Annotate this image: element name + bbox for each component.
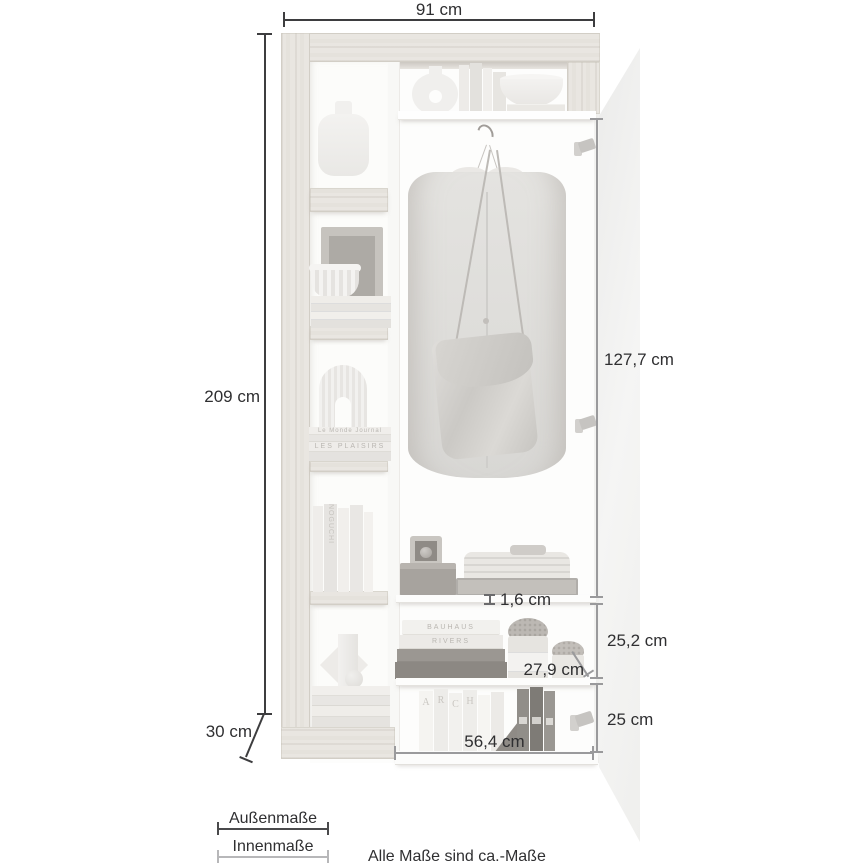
outer-width-label: 91 cm <box>283 0 595 20</box>
middle-shelf-tick-bottom <box>590 677 603 679</box>
book-noguchi-label: NOGUCHI <box>327 504 334 544</box>
book-stack-subtitle: Le Monde Journal <box>309 427 391 435</box>
bottom-shelf-line <box>596 683 598 753</box>
outer-height-tick-top <box>257 33 272 35</box>
legend-inner-label: Innenmaße <box>218 838 328 856</box>
hinge-middle <box>575 415 597 435</box>
legend-note: Alle Maße sind ca.-Maße <box>368 848 546 866</box>
book-stack-title: LES PLAISIRS <box>309 442 391 452</box>
outer-height-label: 209 cm <box>180 387 260 407</box>
bottom-shelf-tick-top <box>590 683 603 685</box>
folder-letter-c: C <box>449 699 462 710</box>
folder-letter-a: A <box>419 697 433 708</box>
middle-shelf-label: 25,2 cm <box>607 631 667 651</box>
vase-decor-body <box>318 114 369 176</box>
left-shelf-1 <box>310 188 388 212</box>
book-bauhaus: BAUHAUS <box>402 620 500 635</box>
frame-bottom-plank <box>281 727 395 759</box>
frame-left-plank <box>281 33 310 759</box>
inner-width-tick-right <box>592 746 594 760</box>
middle-shelf-line <box>596 603 598 678</box>
coat-button-1 <box>483 318 489 324</box>
door-height-tick-bottom <box>590 596 603 598</box>
product-dimension-diagram: Le Monde Journal LES PLAISIRS NOGUCHI <box>0 0 868 868</box>
frame-right-corner-plank <box>567 62 600 114</box>
bottom-book-stack <box>312 686 390 728</box>
left-shelf-4 <box>310 591 388 605</box>
door-height-line <box>596 118 598 598</box>
middle-shelf-tick-top <box>590 603 603 605</box>
folder-letter-h: H <box>463 696 477 707</box>
arch-sculpture-notch <box>335 397 351 429</box>
book-noguchi-spine: NOGUCHI <box>324 504 337 592</box>
bottom-shelf-label: 25 cm <box>607 710 653 730</box>
folder-letter-r: R <box>434 695 448 706</box>
door-height-tick-top <box>590 118 603 120</box>
book-rivers: RIVERS <box>399 635 503 649</box>
legend-outer-label: Außenmaße <box>218 810 328 828</box>
left-shelf-2 <box>310 326 388 340</box>
book-stack-mid-left: Le Monde Journal LES PLAISIRS <box>309 427 391 462</box>
hinge-top <box>574 138 596 158</box>
fluted-bowl-body <box>311 270 359 298</box>
legend-inner-line <box>218 856 328 858</box>
mid-book-stack: BAUHAUS RIVERS <box>395 620 507 679</box>
outer-height-line <box>264 33 266 714</box>
top-books-row <box>459 63 506 113</box>
door-height-label: 127,7 cm <box>604 350 674 370</box>
donut-vase-hole <box>429 90 442 103</box>
left-shelf-3 <box>310 461 388 472</box>
thin-shelf-board <box>396 595 596 603</box>
inner-depth-label: 27,9 cm <box>504 660 584 680</box>
display-frame-ornament <box>420 547 432 558</box>
shelf-thickness-label: 1,6 cm <box>500 590 551 610</box>
shelf-thickness-bar-bottom <box>484 603 495 605</box>
magazine-stack <box>311 296 391 328</box>
vertical-books-left: NOGUCHI <box>313 503 377 592</box>
inner-width-line <box>395 752 594 754</box>
dark-box <box>400 569 456 596</box>
legend-outer-line <box>218 828 328 830</box>
frame-top-plank <box>281 33 600 62</box>
outer-depth-label: 30 cm <box>176 722 252 742</box>
blanket-handle <box>510 545 546 555</box>
inner-width-tick-left <box>394 746 396 760</box>
inner-width-label: 56,4 cm <box>395 732 594 752</box>
top-shelf-board <box>398 111 596 120</box>
hinge-bottom <box>570 710 594 734</box>
